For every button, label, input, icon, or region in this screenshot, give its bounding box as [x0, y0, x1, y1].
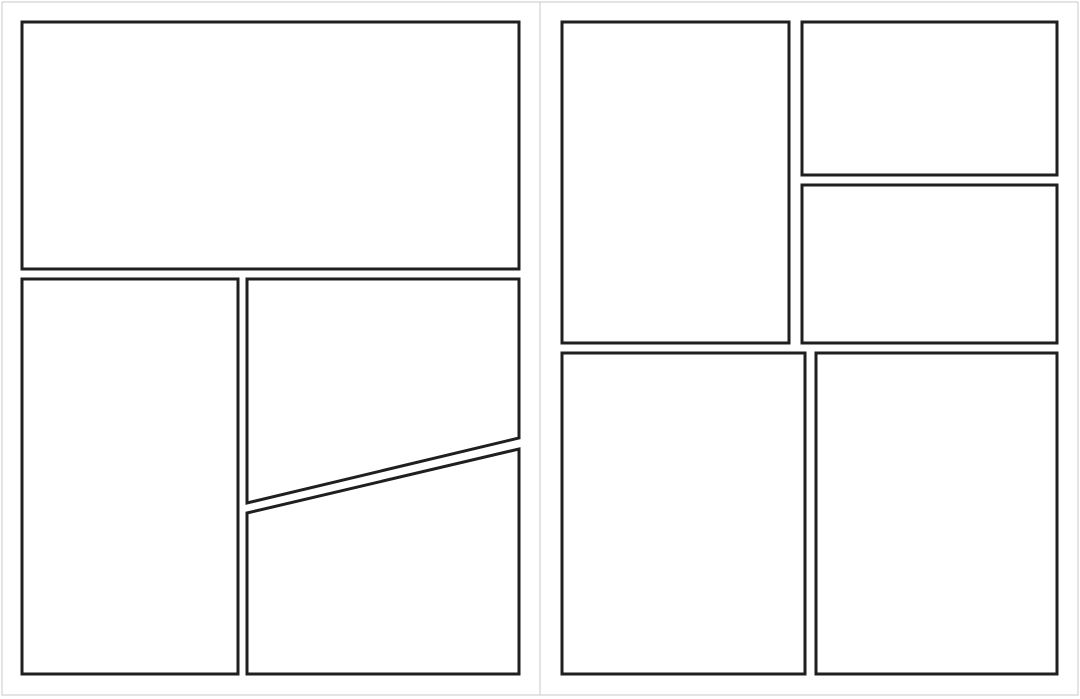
comic-template-spread [0, 0, 1080, 699]
panel-right-bottom-left [562, 353, 805, 674]
panel-left-top-banner [22, 22, 519, 269]
panel-left-bottom-left [22, 279, 238, 674]
panel-right-top-tall [562, 22, 789, 343]
spread-svg [0, 0, 1080, 699]
panel-right-top-stack-2 [802, 185, 1057, 343]
panel-right-top-stack-1 [802, 22, 1057, 175]
panel-right-bottom-right [816, 353, 1057, 674]
